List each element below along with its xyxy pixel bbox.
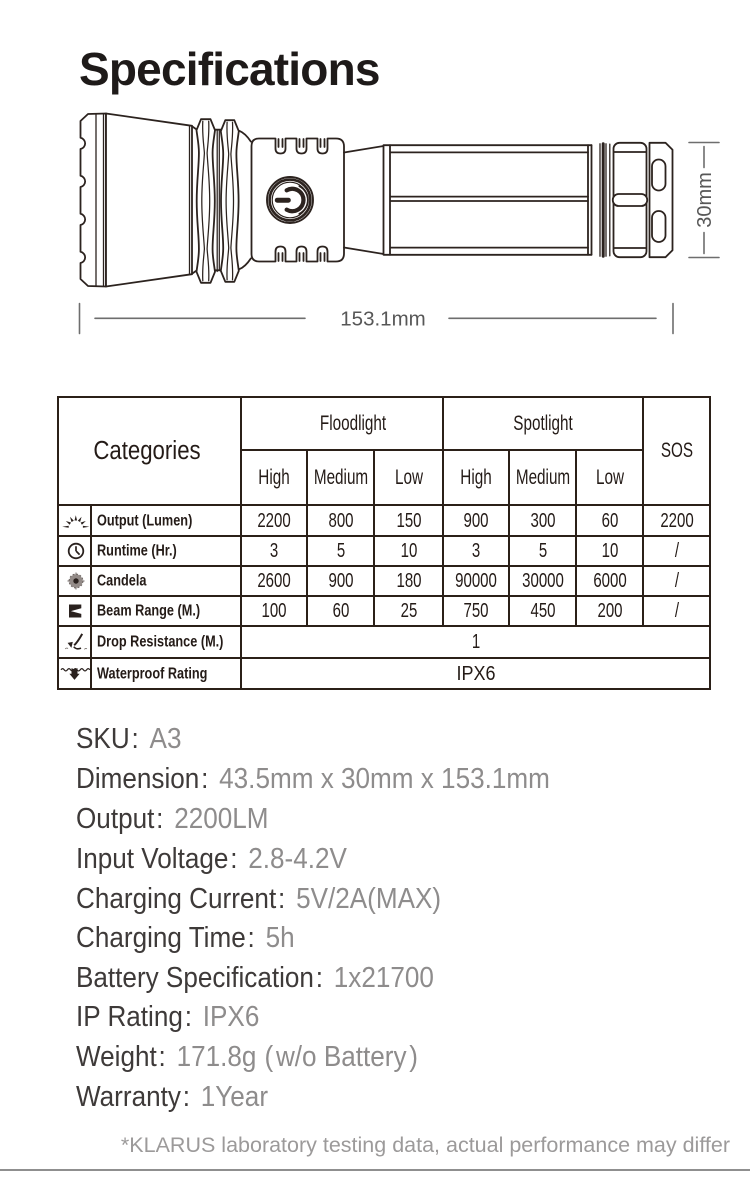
- svg-text:153.1mm: 153.1mm: [340, 308, 425, 331]
- svg-text:30mm: 30mm: [694, 172, 716, 228]
